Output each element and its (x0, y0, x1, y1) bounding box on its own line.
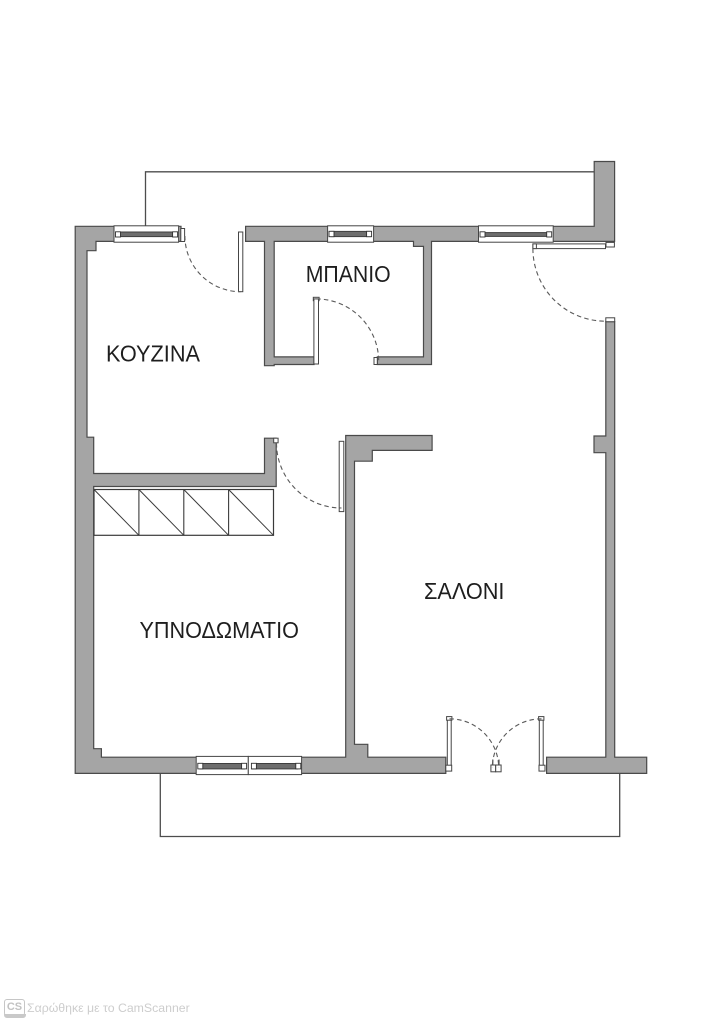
svg-text:ΜΠΑΝΙΟ: ΜΠΑΝΙΟ (306, 261, 391, 287)
svg-text:ΚΟΥΖΙΝΑ: ΚΟΥΖΙΝΑ (106, 341, 200, 367)
svg-text:ΣΑΛΟΝΙ: ΣΑΛΟΝΙ (424, 578, 505, 604)
svg-text:ΥΠΝΟΔΩΜΑΤΙΟ: ΥΠΝΟΔΩΜΑΤΙΟ (139, 617, 299, 643)
